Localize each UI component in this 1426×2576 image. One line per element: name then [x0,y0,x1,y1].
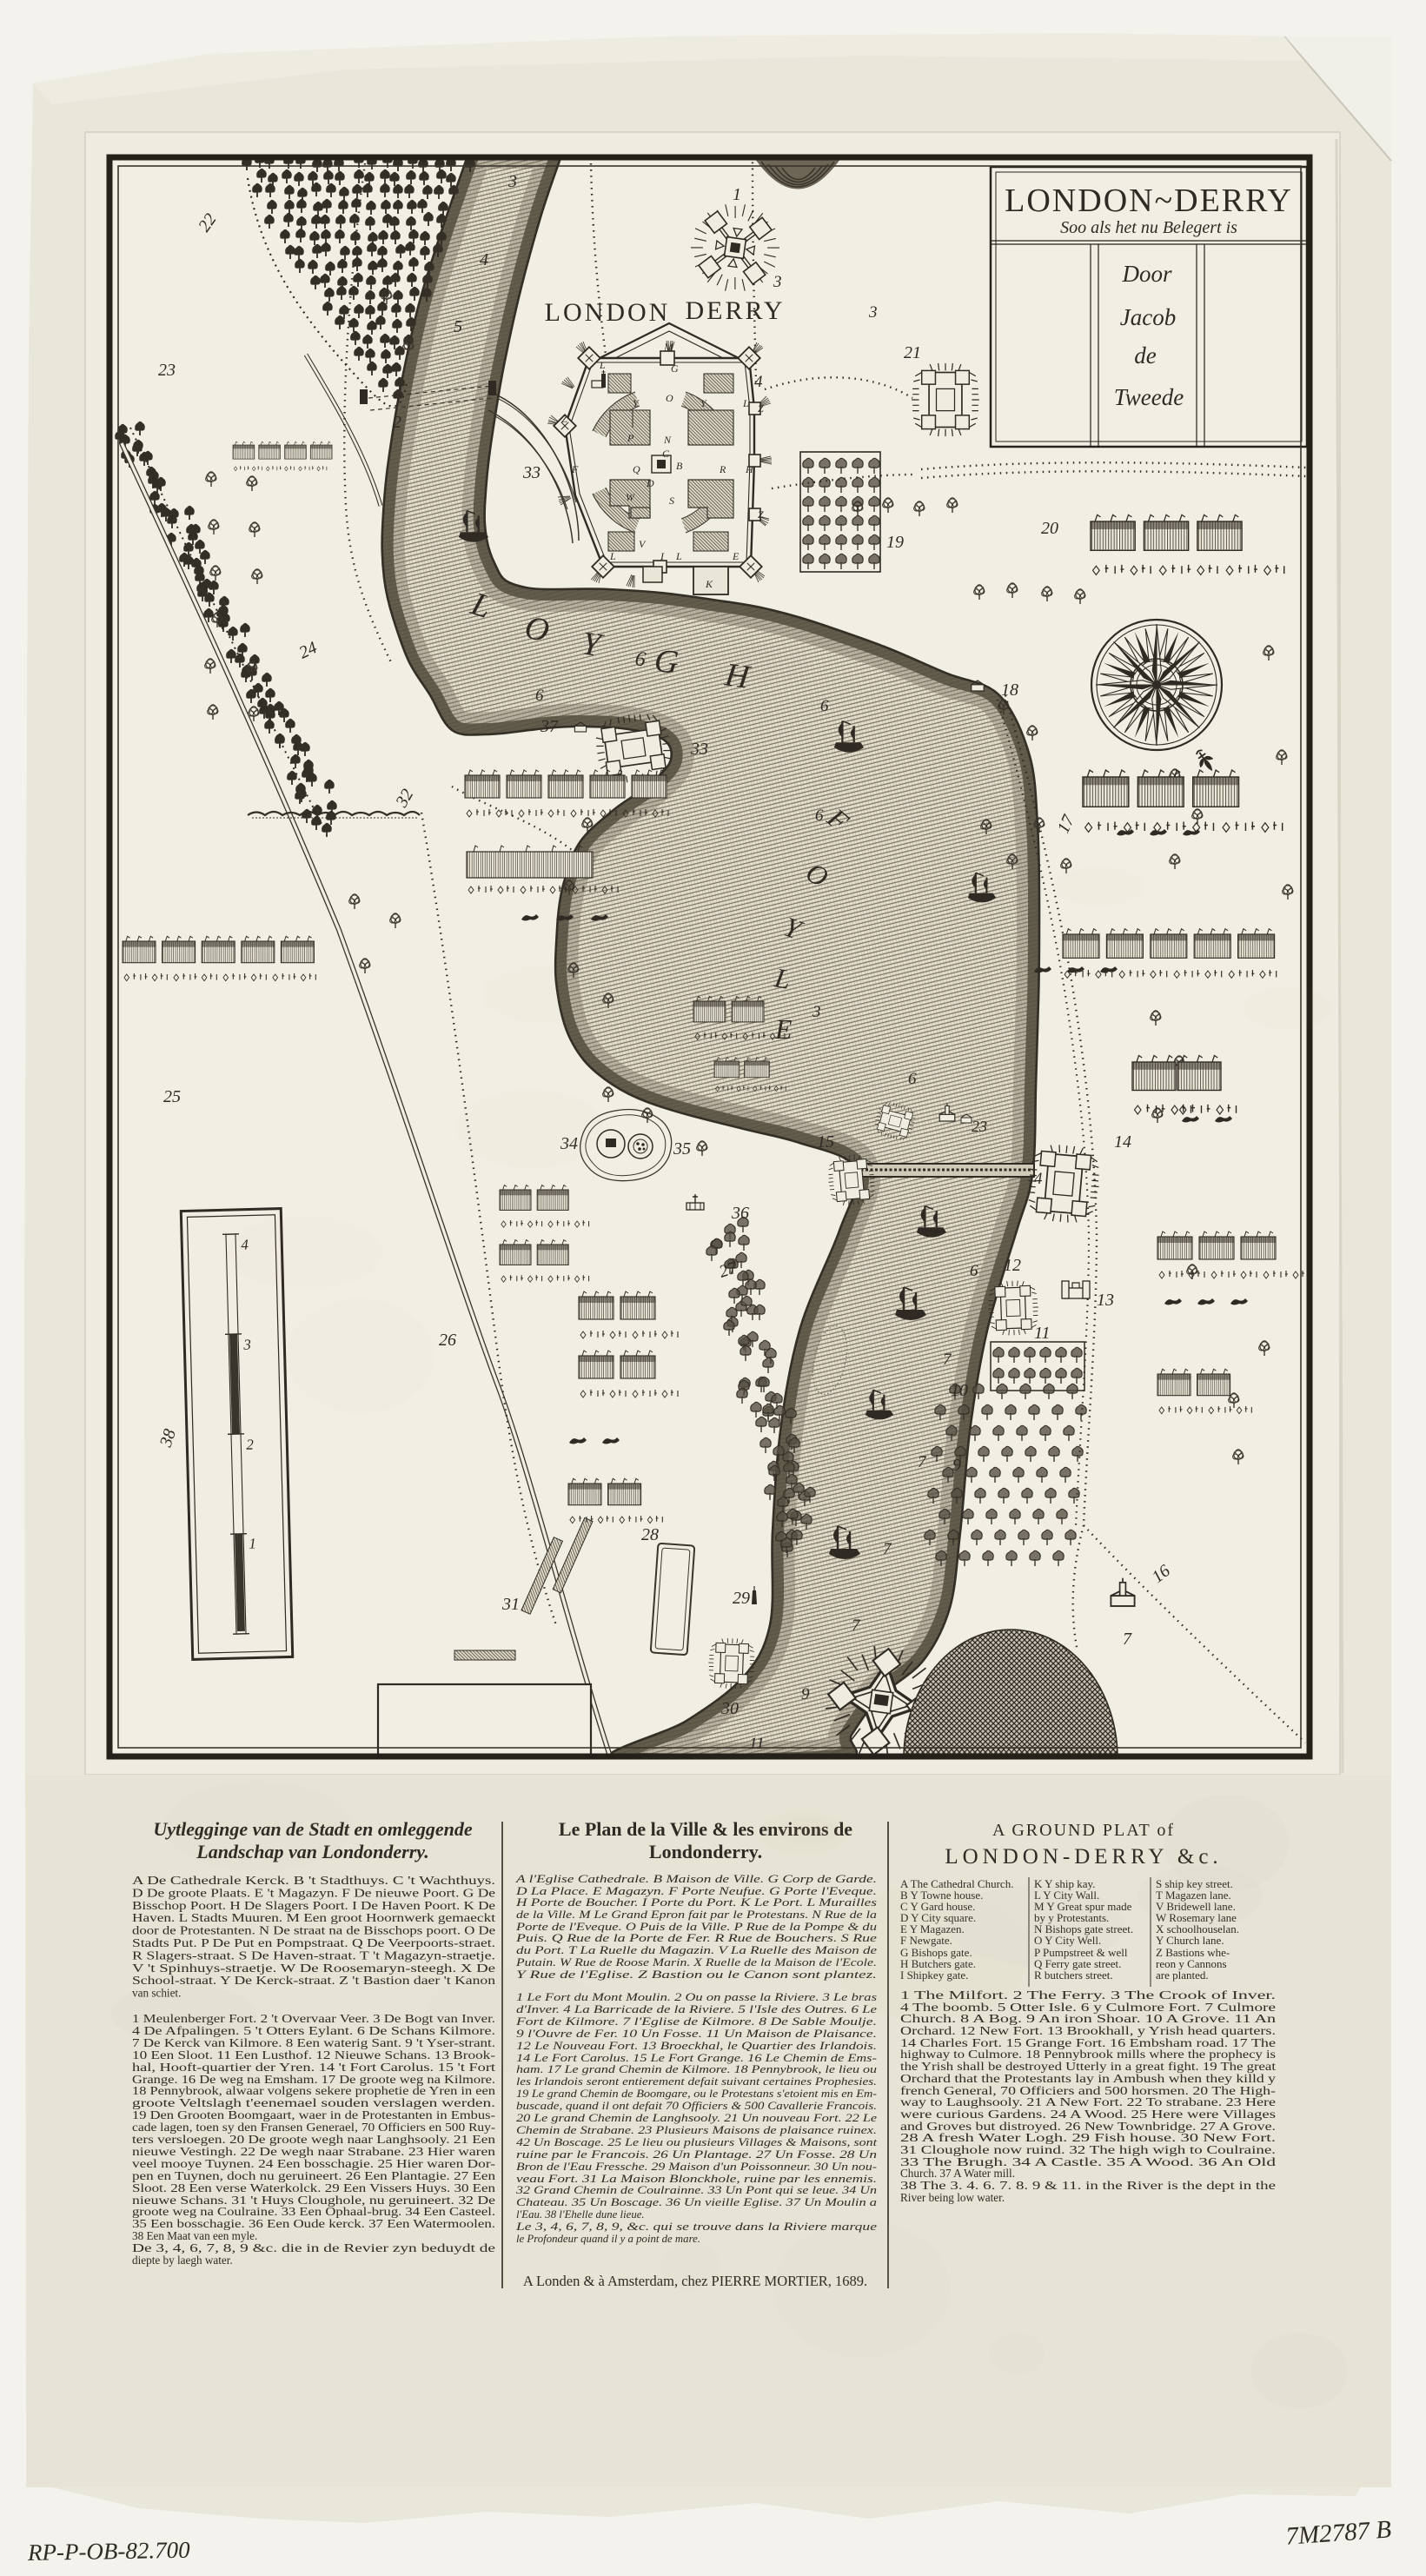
svg-text:ham. 17 Le grand Chemin de Ki: ham. 17 Le grand Chemin de Kilmore. 18 P… [516,2063,877,2075]
svg-text:H: H [745,463,754,475]
svg-text:V 't Spinhuys-straetje. W De: V 't Spinhuys-straetje. W De Roosemaryn-… [132,1962,495,1975]
svg-text:5: 5 [454,317,462,336]
svg-text:7: 7 [918,1453,927,1471]
svg-text:E: E [774,1013,793,1045]
svg-text:14: 14 [1114,1132,1131,1152]
svg-text:31 Cloughole now ruind. 32: 31 Cloughole now ruind. 32 The high wigh… [900,2143,1276,2156]
svg-text:DERRY: DERRY [685,296,785,325]
svg-text:R Slagers-straat. S De Haven-: R Slagers-straat. S De Haven-straat. T '… [132,1949,495,1962]
svg-text:3: 3 [868,303,878,322]
svg-text:7: 7 [883,1540,892,1558]
svg-text:RP-P-OB-82.700: RP-P-OB-82.700 [27,2537,191,2566]
svg-text:groote Veltslagh t'eenemael so: groote Veltslagh t'eenemael souden versl… [132,2096,495,2109]
svg-text:Jacob: Jacob [1120,304,1176,330]
svg-text:Bron de l'Eau Fressche. 29 Ma: Bron de l'Eau Fressche. 29 Maison d'un P… [516,2161,877,2173]
svg-text:D La Place. E Magazyn. F Por: D La Place. E Magazyn. F Porte Neufue. G… [515,1885,877,1897]
svg-text:38 The 3. 4. 6. 7. 8. 9 & 11.: 38 The 3. 4. 6. 7. 8. 9 & 11. in the Riv… [900,2179,1276,2192]
svg-text:37: 37 [540,717,559,736]
svg-text:Sloot. 28 Een verse Waterkolc: Sloot. 28 Een verse Waterkolck. 29 Een V… [132,2181,496,2194]
svg-text:6: 6 [908,1070,917,1088]
svg-text:door de Protestanten. N De st: door de Protestanten. N De straat na de … [132,1924,495,1937]
svg-text:20 Le grand Chemin de Langhsoo: 20 Le grand Chemin de Langhsooly. 21 Un … [516,2112,877,2124]
svg-text:9: 9 [952,1456,961,1475]
svg-text:9: 9 [801,1685,810,1703]
svg-text:15: 15 [817,1132,834,1152]
svg-text:28: 28 [641,1525,659,1544]
svg-text:Porte de l'Eveque. O Puis de: Porte de l'Eveque. O Puis de la Ville. P… [515,1921,877,1933]
svg-text:23: 23 [972,1118,987,1135]
svg-text:25: 25 [163,1087,181,1106]
svg-text:L: L [742,397,749,409]
svg-text:l'Eau. 38 l'Ehelle dune lieue: l'Eau. 38 l'Ehelle dune lieue. [516,2208,645,2221]
svg-text:18 Pennybrook, alwaar volgens: 18 Pennybrook, alwaar volgens sekere pro… [132,2084,495,2097]
svg-text:way to Laughsooly. 21 A New F: way to Laughsooly. 21 A New Fort. 22 To … [900,2095,1276,2108]
svg-text:Church. 37 A Water mill.: Church. 37 A Water mill. [900,2167,1015,2180]
svg-text:3: 3 [242,1337,251,1353]
svg-text:were curious Gardens. 24 A: were curious Gardens. 24 A Wood. 25 Here… [900,2108,1276,2121]
svg-text:33: 33 [522,463,541,482]
svg-text:12: 12 [1004,1256,1021,1275]
svg-text:hal, Hooft-quartier der Yren.: hal, Hooft-quartier der Yren. 14 't Fort… [132,2061,495,2074]
svg-text:W: W [626,491,635,503]
svg-text:P: P [627,432,634,444]
svg-text:are planted.: are planted. [1156,1969,1209,1982]
svg-text:de: de [1134,342,1157,368]
svg-text:21: 21 [904,343,921,362]
svg-text:35: 35 [673,1139,691,1159]
svg-text:R butchers street.: R butchers street. [1034,1969,1113,1982]
svg-text:Soo als het nu Belegert is: Soo als het nu Belegert is [1060,218,1237,237]
svg-text:32 Grand Chemin de Coulrainne.: 32 Grand Chemin de Coulrainne. 33 Un Pon… [515,2184,877,2196]
svg-text:7: 7 [943,1351,952,1369]
svg-text:42 Un Boscage. 25 Le lieu ou: 42 Un Boscage. 25 Le lieu ou plusieurs V… [516,2136,878,2148]
svg-text:groote weg na Coulraine. 33 E: groote weg na Coulraine. 33 Een Ophaal-b… [132,2205,495,2218]
svg-text:veau Fort. 31 La Maison Blonc: veau Fort. 31 La Maison Blonckhole, ruin… [516,2173,877,2185]
svg-text:Tweede: Tweede [1114,384,1184,410]
svg-text:S: S [669,495,674,507]
svg-text:G: G [671,362,679,375]
svg-text:veel mooye Tuynen. 24 Een bos: veel mooye Tuynen. 24 Een bosschagie. 25… [132,2157,495,2170]
svg-text:7: 7 [1123,1630,1132,1649]
svg-text:buscade, quand il ont defait 7: buscade, quand il ont defait 70 Officier… [516,2100,877,2112]
svg-text:C: C [662,448,670,460]
svg-text:10 Een Sloot. 11 Een Lusthof.: 10 Een Sloot. 11 Een Lusthof. 12 Nieuwe … [132,2048,495,2061]
svg-text:Bisschop Poort. H De Slagers: Bisschop Poort. H De Slagers Poort. I De… [132,1899,495,1912]
svg-text:Chemin de Strabane. 23 Plusie: Chemin de Strabane. 23 Plusieurs Maisons… [516,2124,877,2136]
svg-text:Stadts Put. P De Put en Pomps: Stadts Put. P De Put en Pompstraat. Q De… [132,1936,495,1949]
svg-text:3: 3 [507,172,517,191]
svg-text:35 Een bosschagie. 36 Een Oud: 35 Een bosschagie. 36 Een Oude kerck. 37… [132,2217,495,2230]
svg-text:19 Le grand Chemin de Boomgare: 19 Le grand Chemin de Boomgare, ou le Pr… [516,2088,877,2100]
svg-text:A l'Eglise Cathedrale. B Mai: A l'Eglise Cathedrale. B Maison de Ville… [515,1873,877,1885]
svg-text:19: 19 [886,533,904,552]
svg-text:Z: Z [561,413,567,425]
svg-text:R: R [719,463,726,475]
svg-text:18: 18 [1001,681,1018,700]
svg-text:E: E [732,550,740,562]
svg-text:28 A fresh Water Logh. 29: 28 A fresh Water Logh. 29 Fish house. 30… [900,2131,1276,2144]
svg-text:ruine par le Francois. 26 Un: ruine par le Francois. 26 Un Plantage. 2… [516,2148,877,2161]
svg-text:Orchard that the Protestants l: Orchard that the Protestants lay in Ambu… [900,2072,1277,2085]
svg-text:L: L [675,550,682,562]
svg-text:1: 1 [249,1535,256,1551]
svg-text:nieuwe Vestingh. 22 De wegh n: nieuwe Vestingh. 22 De wegh naar Straban… [132,2145,496,2158]
svg-text:7: 7 [852,1617,861,1635]
svg-text:pen en Tuynen, doch nu geruine: pen en Tuynen, doch nu geruineert. 26 Ee… [132,2169,496,2182]
svg-text:G: G [653,642,680,681]
svg-text:38 Een Maat van een myle.: 38 Een Maat van een myle. [132,2229,257,2242]
svg-text:23: 23 [158,361,176,380]
svg-text:10: 10 [951,1381,968,1400]
svg-text:De 3, 4, 6, 7, 8, 9 &c. die in: De 3, 4, 6, 7, 8, 9 &c. die in de Revier… [132,2241,495,2254]
svg-text:11: 11 [1034,1324,1051,1343]
svg-text:LONDON: LONDON [545,298,671,327]
svg-text:diepte by laegh water.: diepte by laegh water. [132,2254,233,2267]
svg-text:highway to Culmore. 18 Pennyb: highway to Culmore. 18 Pennybrook mills … [900,2048,1276,2061]
svg-text:6: 6 [970,1262,978,1280]
svg-text:Z: Z [758,508,764,521]
svg-text:19 Den Grooten Boomgaart, waer: 19 Den Grooten Boomgaart, waer in de Pro… [132,2108,495,2121]
svg-text:de la Ville. M Le Grand Epron: de la Ville. M Le Grand Epron fait par l… [516,1909,877,1921]
svg-text:3: 3 [812,1003,821,1021]
svg-text:cade lagen, toen sy den Franse: cade lagen, toen sy den Fransen Generael… [132,2121,495,2134]
svg-text:36: 36 [731,1204,749,1223]
svg-text:River being low water.: River being low water. [900,2191,1005,2204]
svg-text:Q: Q [633,463,640,475]
svg-text:20: 20 [1041,519,1058,538]
svg-text:Londonderry.: Londonderry. [649,1841,762,1862]
svg-text:Z: Z [758,402,764,415]
svg-text:B: B [676,460,683,472]
svg-text:2: 2 [246,1436,254,1452]
svg-text:K: K [705,578,713,590]
svg-text:O: O [666,392,673,404]
svg-text:6: 6 [535,687,544,705]
svg-text:11: 11 [749,1735,765,1753]
svg-text:33: 33 [690,740,708,759]
svg-text:le Profondeur quand il y a poi: le Profondeur quand il y a point de mare… [516,2233,700,2245]
svg-text:6: 6 [820,697,829,715]
svg-text:2: 2 [393,413,401,432]
svg-text:Chateau. 35 Un Boscage. 36 U: Chateau. 35 Un Boscage. 36 Un vieille Eg… [516,2196,877,2208]
svg-text:F: F [571,463,579,475]
svg-text:Puis. Q Rue de la Porte de Fe: Puis. Q Rue de la Porte de Fer. R Rue de… [515,1932,878,1944]
svg-text:4: 4 [480,250,488,269]
svg-text:Putain. W Rue de Roose Marin.: Putain. W Rue de Roose Marin. X Ruelle d… [515,1956,877,1969]
svg-text:A De Cathedrale Kerck. B 't: A De Cathedrale Kerck. B 't Stadthuys. C… [132,1874,495,1887]
svg-text:4: 4 [1034,1170,1043,1188]
svg-text:3: 3 [773,273,782,291]
svg-text:29: 29 [733,1589,750,1608]
svg-text:13: 13 [1097,1291,1114,1310]
svg-text:D: D [646,477,654,489]
svg-text:L: L [609,550,616,562]
svg-text:les Irlandois seront entiereme: les Irlandois seront entierement defait … [516,2075,877,2088]
svg-text:N: N [663,434,672,446]
svg-text:6: 6 [815,807,824,825]
svg-text:26: 26 [439,1331,456,1350]
svg-text:A GROUND PLAT of: A GROUND PLAT of [992,1821,1175,1840]
svg-text:1: 1 [733,185,741,204]
svg-text:D De groote Plaats. E 't Maga: D De groote Plaats. E 't Magazyn. F De n… [132,1886,495,1899]
svg-text:Haven. L Stadts Muuren. M Ee: Haven. L Stadts Muuren. M Een groot Hoor… [132,1911,495,1924]
svg-text:H Porte de Boucher. I Porte d: H Porte de Boucher. I Porte du Port. K L… [515,1896,877,1909]
svg-text:ters versloegen. 20 De groote: ters versloegen. 20 De groote wegh naar … [132,2133,496,2146]
svg-text:du Port. T La Ruelle du Magaz: du Port. T La Ruelle du Magazin. V La Ru… [516,1944,877,1956]
svg-text:LONDON~DERRY: LONDON~DERRY [1005,183,1293,219]
svg-text:Y Church lane.: Y Church lane. [1156,1934,1224,1947]
svg-text:30: 30 [720,1699,739,1718]
svg-text:L: L [599,359,606,371]
svg-text:31: 31 [501,1595,520,1614]
svg-text:Door: Door [1121,261,1171,287]
svg-text:the Yrish shall be destroyed U: the Yrish shall be destroyed Utterly in … [900,2060,1276,2073]
